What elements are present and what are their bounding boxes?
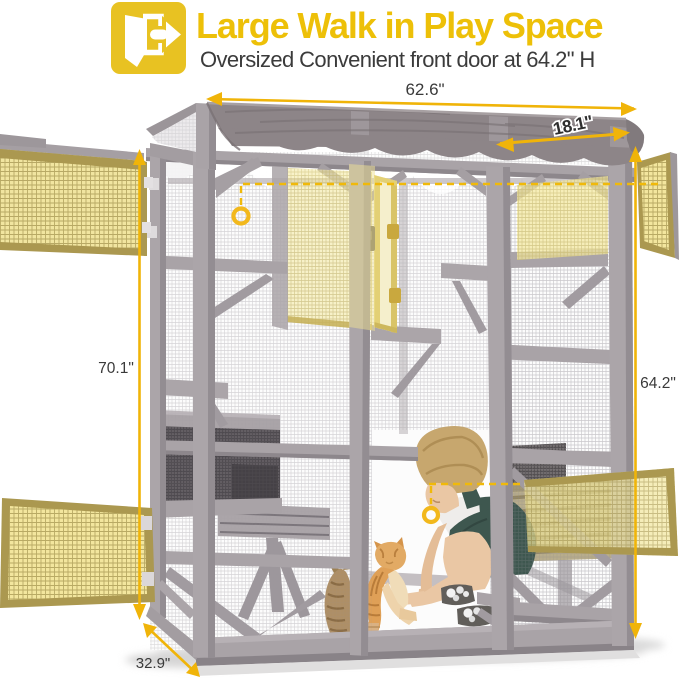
svg-text:70.1": 70.1" [98, 360, 134, 377]
svg-text:Oversized Convenient front doo: Oversized Convenient front door at 64.2"… [200, 47, 595, 72]
svg-text:62.6": 62.6" [405, 80, 444, 99]
svg-text:32.9": 32.9" [136, 655, 171, 672]
svg-text:64.2": 64.2" [640, 375, 676, 392]
svg-text:Large Walk in Play Space: Large Walk in Play Space [196, 5, 603, 46]
